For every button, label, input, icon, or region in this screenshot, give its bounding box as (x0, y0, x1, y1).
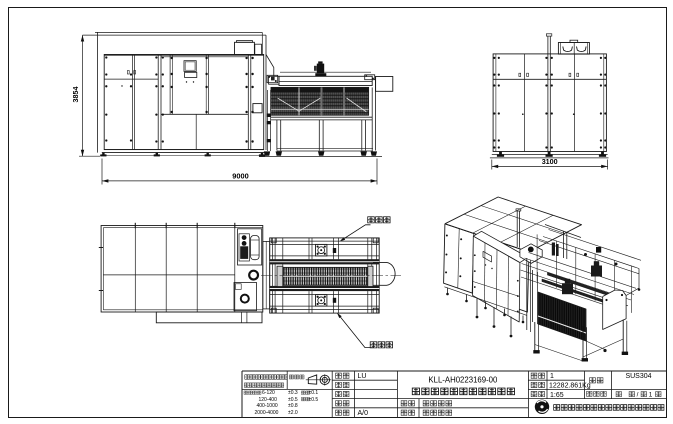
svg-text:3854: 3854 (71, 87, 80, 103)
svg-text:±0.3: ±0.3 (288, 390, 298, 396)
svg-text:SUS304: SUS304 (625, 373, 651, 380)
svg-text:LU: LU (358, 373, 367, 380)
svg-text:±0.8: ±0.8 (288, 403, 298, 409)
svg-text:KLL-AH0223169-00: KLL-AH0223169-00 (428, 376, 498, 385)
svg-text:2000-4000: 2000-4000 (255, 410, 279, 416)
svg-text:±0.5: ±0.5 (288, 397, 298, 403)
svg-text:9000: 9000 (232, 171, 248, 180)
svg-text:3100: 3100 (542, 157, 558, 166)
svg-text:6-120: 6-120 (262, 390, 275, 396)
svg-text:A/0: A/0 (358, 410, 369, 417)
svg-text:1:65: 1:65 (550, 392, 564, 399)
svg-text:1: 1 (649, 392, 653, 399)
svg-text:12282.861Kg: 12282.861Kg (549, 383, 591, 390)
svg-text:±0.1: ±0.1 (309, 390, 319, 396)
svg-text:/: / (637, 392, 639, 399)
svg-text:±0.5: ±0.5 (309, 397, 319, 403)
svg-text:400-1000: 400-1000 (257, 403, 278, 409)
svg-text:±2.0: ±2.0 (288, 410, 298, 416)
svg-text:1: 1 (550, 373, 554, 380)
svg-text:120-400: 120-400 (259, 397, 278, 403)
